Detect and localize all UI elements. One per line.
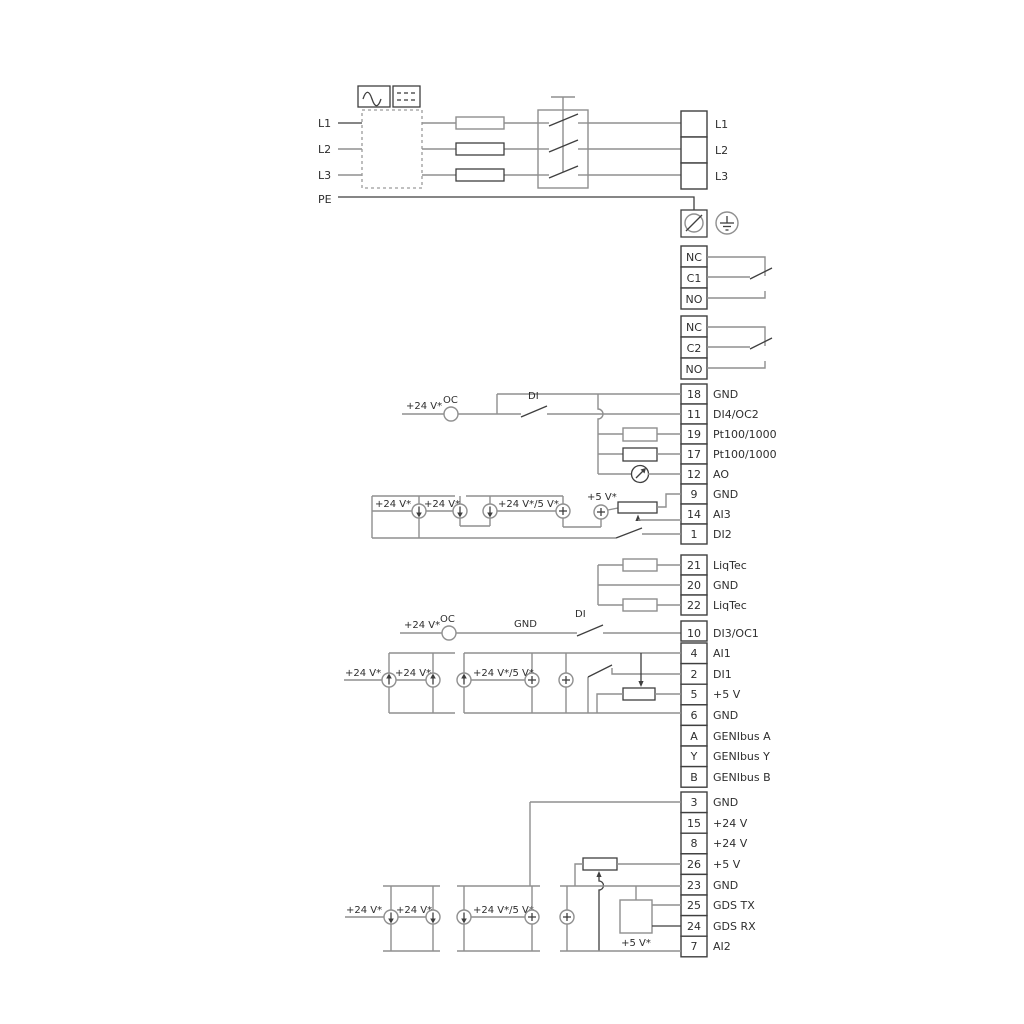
terminal-12-num: 12 (687, 468, 701, 481)
dc-symbol-icon (393, 86, 420, 107)
di4-oc2-circuit: +24 V* OC DI (402, 391, 681, 483)
v24-label-ai1-2: +24 V* (395, 668, 431, 679)
terminal-1-label: DI2 (713, 528, 732, 541)
potentiometer-icon-ai3 (618, 502, 657, 521)
output-line-label-l3: L3 (715, 170, 728, 183)
fuse-icon-l2 (456, 143, 504, 155)
mains-terminal-block: L1 L2 L3 (681, 111, 728, 189)
output-line-label-l2: L2 (715, 144, 728, 157)
terminal-18-num: 18 (687, 388, 701, 401)
terminal-14-label: AI3 (713, 508, 731, 521)
wiring-diagram-page: L1 L2 L3 PE (0, 0, 1024, 1024)
gnd-label-di3: GND (514, 619, 537, 630)
wiring-diagram-canvas: L1 L2 L3 PE (0, 0, 1024, 1024)
v24-label-di3: +24 V* (404, 620, 440, 631)
open-collector-icon-2 (442, 626, 456, 640)
terminal-2-label: DI1 (713, 668, 732, 681)
current-source-icon-ai3-1 (412, 504, 426, 518)
terminal-4-label: AI1 (713, 647, 731, 660)
fuse-icon-l1 (456, 117, 504, 129)
earth-icon (716, 212, 738, 234)
terminal-21-num: 21 (687, 559, 701, 572)
terminal-5-num: 5 (691, 688, 698, 701)
terminal-12-label: AO (713, 468, 729, 481)
terminal-7-num: 7 (691, 940, 698, 953)
terminal-25-label: GDS TX (713, 899, 755, 912)
terminal-22-num: 22 (687, 599, 701, 612)
relay-2-changeover-contact-icon (707, 327, 772, 368)
terminal-9-label: GND (713, 488, 738, 501)
terminal-21-label: LiqTec (713, 559, 747, 572)
terminal-20-label: GND (713, 579, 738, 592)
terminal-25-num: 25 (687, 899, 701, 912)
current-source-icon-ai3-3 (483, 504, 497, 518)
resistor-icon-pt100-19 (623, 428, 657, 441)
terminal-a-label: GENIbus A (713, 730, 771, 743)
resistor-icon-liqtec-22 (623, 599, 657, 611)
ac-symbol-icon (358, 86, 390, 107)
relay-2-block: NC C2 NO (681, 316, 707, 379)
di-label-di4: DI (528, 391, 539, 402)
power-input-section: L1 L2 L3 PE (318, 117, 362, 206)
relay-1-block: NC C1 NO (681, 246, 707, 309)
terminal-18-label: GND (713, 388, 738, 401)
current-source-icon-ai2-1 (384, 910, 398, 924)
di-label-di3: DI (575, 609, 586, 620)
current-source-icon-ai3-2 (453, 504, 467, 518)
current-source-icon-ai2-3 (457, 910, 471, 924)
input-line-label-pe: PE (318, 193, 332, 206)
terminal-10-label: DI3/OC1 (713, 627, 759, 640)
ai3-sensor-circuit: +24 V* +24 V* +24 V*/5 V* +5 V* (372, 492, 681, 538)
fuse-icon-l3 (456, 169, 504, 181)
open-collector-icon (444, 407, 458, 421)
oc-label-di3: OC (440, 614, 455, 625)
di1-switch-icon (588, 665, 612, 677)
voltage-source-icon-ai3-1 (556, 504, 570, 518)
relay1-nc-label: NC (686, 251, 702, 264)
oc-label-di4: OC (443, 395, 458, 406)
relay-1-changeover-contact-icon (707, 257, 772, 298)
terminal-17-num: 17 (687, 448, 701, 461)
v24-label-ai2-1: +24 V* (346, 905, 382, 916)
relay2-no-label: NO (686, 363, 703, 376)
liqtec-circuit (598, 559, 681, 611)
terminal-11-label: DI4/OC2 (713, 408, 759, 421)
ai1-sensor-circuit: +24 V* +24 V* +24 V*/5 V* (344, 653, 681, 713)
terminal-y-label: GENIbus Y (713, 750, 770, 763)
voltage-source-icon-ai3-2 (594, 505, 608, 519)
terminal-26-label: +5 V (713, 858, 741, 871)
terminal-26-num: 26 (687, 858, 701, 871)
terminal-14-num: 14 (687, 508, 701, 521)
voltage-source-icon-ai2-2 (560, 910, 574, 924)
terminal-15-num: 15 (687, 817, 701, 830)
liqtec-strip: 21LiqTec 20GND 22LiqTec (681, 555, 747, 615)
io-strip-3: 3GND 15+24 V 8+24 V 26+5 V 23GND 25GDS T… (681, 792, 756, 957)
v24-label-ai3-1: +24 V* (375, 499, 411, 510)
ao-meter-icon (632, 466, 649, 483)
input-line-label-l3: L3 (318, 169, 331, 182)
pe-wire (338, 197, 694, 210)
terminal-b-num: B (690, 771, 698, 784)
current-source-icon-ai1-1 (382, 673, 396, 687)
v24-label-ai1-1: +24 V* (345, 668, 381, 679)
current-source-icon-ai2-2 (426, 910, 440, 924)
terminal-6-num: 6 (691, 709, 698, 722)
potentiometer-icon-ai2 (583, 858, 617, 951)
io-strip-2: 10DI3/OC1 4AI1 2DI1 5+5 V 6GND AGENIbus … (681, 621, 771, 787)
di-switch-icon-2 (577, 625, 603, 636)
terminal-8-label: +24 V (713, 837, 748, 850)
relay1-c1-label: C1 (687, 272, 702, 285)
frequency-converter-box (358, 86, 422, 188)
di3-oc1-circuit: +24 V* OC GND DI (400, 609, 681, 640)
terminal-y-num: Y (690, 750, 698, 763)
voltage-source-icon-ai1-2 (559, 673, 573, 687)
terminal-19-label: Pt100/1000 (713, 428, 777, 441)
di2-switch-icon (616, 528, 642, 538)
terminal-b-label: GENIbus B (713, 771, 771, 784)
terminal-24-num: 24 (687, 920, 701, 933)
terminal-a-num: A (690, 730, 698, 743)
terminal-4-num: 4 (691, 647, 698, 660)
terminal-3-num: 3 (691, 796, 698, 809)
current-source-icon-ai1-2 (426, 673, 440, 687)
terminal-20-num: 20 (687, 579, 701, 592)
resistor-icon-liqtec-21 (623, 559, 657, 571)
v5-label-gds: +5 V* (621, 938, 651, 949)
potentiometer-icon-ai1 (623, 653, 655, 700)
gds-module-box: +5 V* (620, 886, 681, 949)
terminal-17-label: Pt100/1000 (713, 448, 777, 461)
v5-label-ai3: +5 V* (587, 492, 617, 503)
pe-terminal-icon (681, 210, 707, 237)
input-line-label-l1: L1 (318, 117, 331, 130)
terminal-1-num: 1 (691, 528, 698, 541)
terminal-5-label: +5 V (713, 688, 741, 701)
terminal-2-num: 2 (691, 668, 698, 681)
terminal-8-num: 8 (691, 837, 698, 850)
terminal-23-label: GND (713, 879, 738, 892)
terminal-6-label: GND (713, 709, 738, 722)
v24or5-label-ai3: +24 V*/5 V* (498, 499, 559, 510)
io-strip-1: 18GND 11DI4/OC2 19Pt100/1000 17Pt100/100… (681, 384, 777, 544)
main-switch-icon (538, 97, 588, 188)
v24or5-label-ai2: +24 V*/5 V* (473, 905, 534, 916)
terminal-9-num: 9 (691, 488, 698, 501)
output-line-label-l1: L1 (715, 118, 728, 131)
di-switch-icon-1 (521, 406, 547, 417)
voltage-source-icon-ai1-1 (525, 673, 539, 687)
terminal-7-label: AI2 (713, 940, 731, 953)
terminal-3-label: GND (713, 796, 738, 809)
v24-label-di4: +24 V* (406, 401, 442, 412)
v24or5-label-ai1: +24 V*/5 V* (473, 668, 534, 679)
terminal-10-num: 10 (687, 627, 701, 640)
terminal-24-label: GDS RX (713, 920, 756, 933)
input-line-label-l2: L2 (318, 143, 331, 156)
terminal-19-num: 19 (687, 428, 701, 441)
relay2-c2-label: C2 (687, 342, 702, 355)
resistor-icon-pt100-17 (623, 448, 657, 461)
relay1-no-label: NO (686, 293, 703, 306)
relay2-nc-label: NC (686, 321, 702, 334)
terminal-11-num: 11 (687, 408, 701, 421)
terminal-23-num: 23 (687, 879, 701, 892)
terminal-15-label: +24 V (713, 817, 748, 830)
voltage-source-icon-ai2-1 (525, 910, 539, 924)
ai2-gds-circuit: +5 V* +24 V* +24 V* +24 V*/5 V* (345, 802, 681, 951)
current-source-icon-ai1-3 (457, 673, 471, 687)
terminal-22-label: LiqTec (713, 599, 747, 612)
